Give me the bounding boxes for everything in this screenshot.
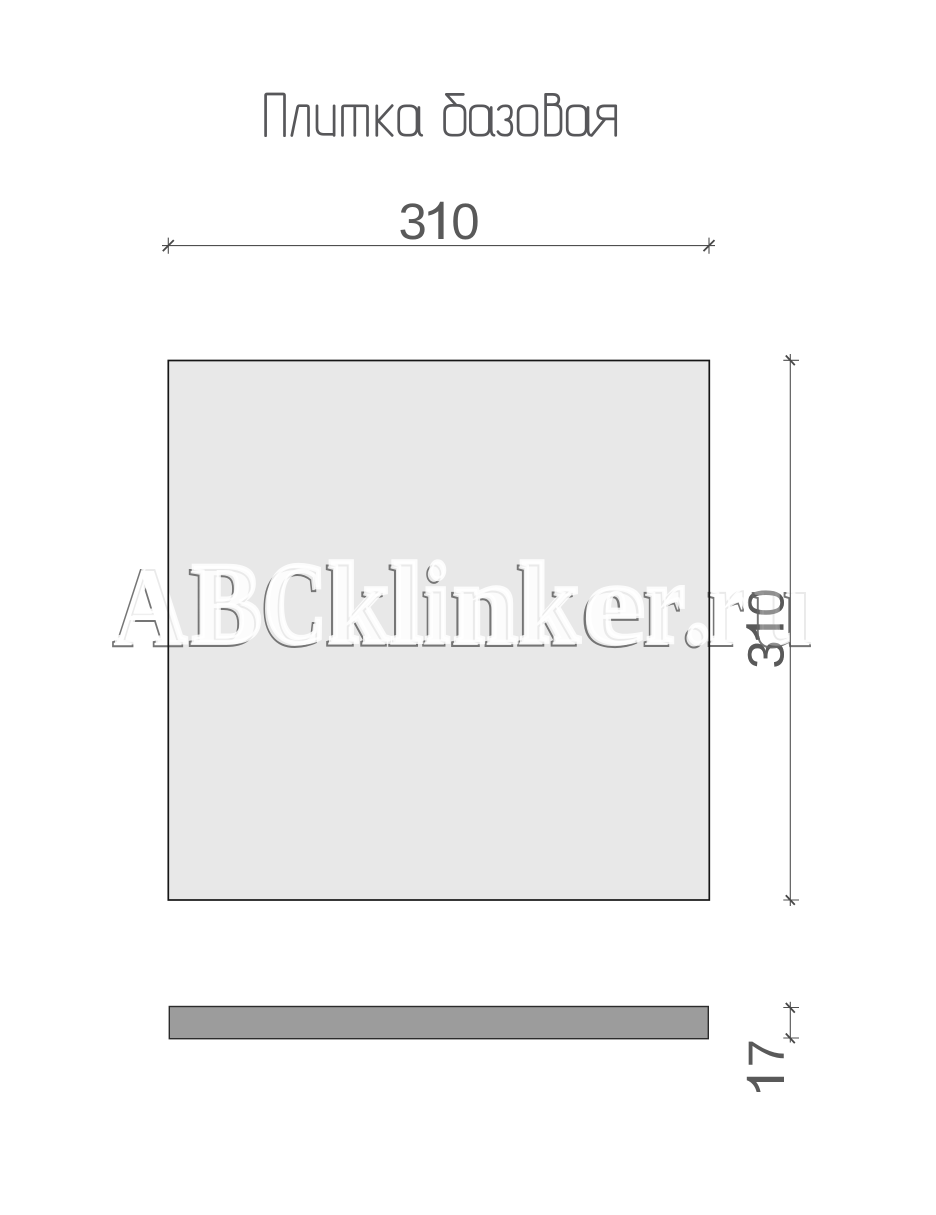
- svg-text:.: .: [685, 540, 711, 668]
- svg-text:0: 0: [738, 588, 795, 616]
- svg-text:r: r: [646, 540, 685, 668]
- svg-text:7: 7: [738, 1039, 795, 1067]
- svg-text:i: i: [425, 540, 450, 668]
- svg-text:n: n: [453, 540, 518, 668]
- svg-text:0: 0: [451, 193, 479, 250]
- svg-text:e: e: [584, 540, 645, 668]
- svg-text:3: 3: [399, 193, 427, 250]
- svg-text:3: 3: [738, 640, 795, 668]
- svg-text:k: k: [519, 540, 580, 668]
- svg-text:C: C: [264, 540, 327, 668]
- svg-text:B: B: [192, 540, 262, 668]
- svg-text:A: A: [116, 540, 187, 668]
- svg-text:l: l: [391, 540, 423, 668]
- svg-text:k: k: [328, 540, 390, 668]
